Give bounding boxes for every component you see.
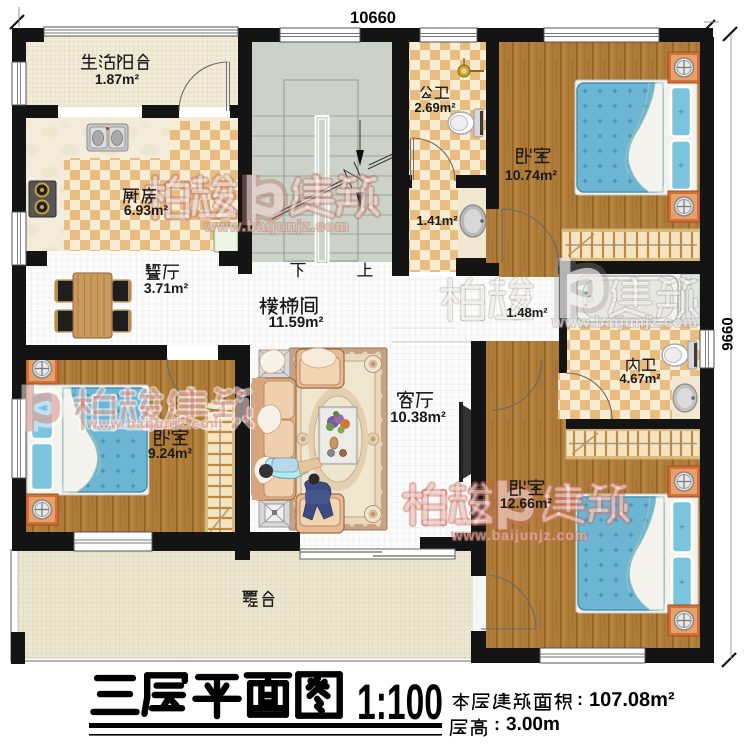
svg-text:3.00m: 3.00m (506, 714, 560, 735)
svg-text:9660: 9660 (720, 317, 737, 350)
svg-text:2.69m²: 2.69m² (414, 100, 456, 115)
svg-text:1.87m²: 1.87m² (95, 71, 140, 87)
svg-text:www.baijunjz.com: www.baijunjz.com (203, 218, 349, 235)
svg-text:9.24m²: 9.24m² (148, 445, 193, 461)
svg-text:10.74m²: 10.74m² (505, 167, 557, 183)
svg-text:107.08m²: 107.08m² (589, 689, 675, 711)
svg-text:10.38m²: 10.38m² (390, 409, 446, 426)
svg-text:10660: 10660 (350, 9, 396, 27)
svg-text:12.66m²: 12.66m² (500, 495, 552, 511)
svg-text::: : (577, 689, 583, 709)
svg-text:3.71m²: 3.71m² (144, 280, 189, 296)
svg-text::: : (494, 714, 500, 734)
svg-text:1:100: 1:100 (357, 674, 443, 730)
svg-text:www.baijunjz.com: www.baijunjz.com (551, 314, 697, 331)
svg-text:1.48m²: 1.48m² (506, 305, 548, 320)
svg-text:1.41m²: 1.41m² (416, 213, 458, 228)
svg-text:6.93m²: 6.93m² (124, 202, 169, 218)
svg-text:www.baijunjz.com: www.baijunjz.com (451, 527, 589, 543)
svg-text:www.baijunjz.com: www.baijunjz.com (86, 415, 224, 431)
svg-text:11.59m²: 11.59m² (268, 314, 323, 331)
svg-text:4.67m²: 4.67m² (619, 371, 661, 386)
